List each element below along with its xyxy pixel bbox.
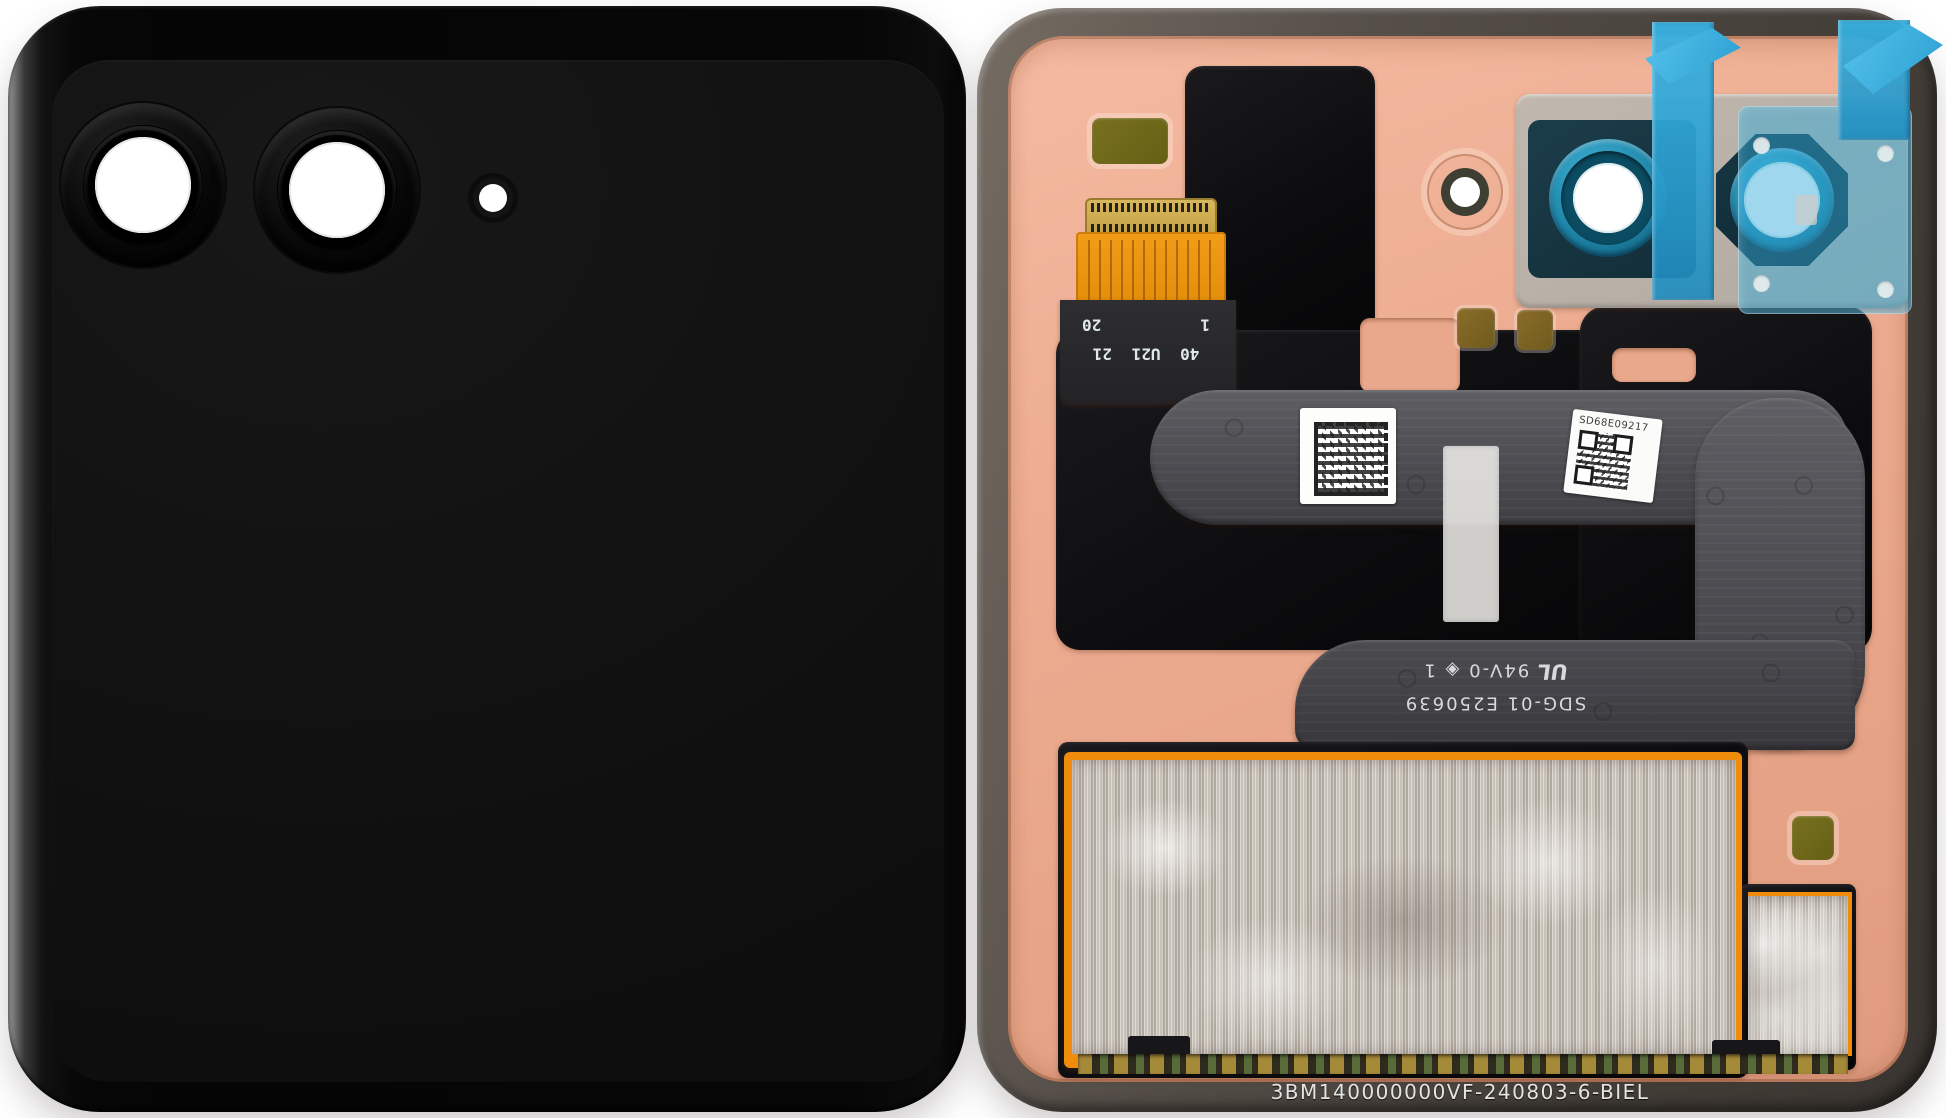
camera-lens-ring-2	[255, 108, 419, 272]
camera-lens-cutout-2	[289, 142, 385, 238]
diamond-symbol-icon: ◈	[1444, 660, 1460, 681]
flex-pin-marking: 40 U21 21 1 20	[1068, 310, 1224, 368]
qr-code-icon	[1573, 430, 1633, 490]
flex-pin-ends: 1 20	[1068, 310, 1224, 339]
olive-sticker-top	[1092, 118, 1168, 164]
film-screw-hole	[1753, 275, 1770, 292]
cover-assembly-inner: 40 U21 21 1 20 SDG-01 E250639 UL94V-0 ◈ …	[977, 8, 1937, 1112]
flex-pin-row: 40 U21 21	[1068, 339, 1224, 368]
gold-pad-1	[1457, 308, 1495, 348]
qr-eye-icon	[1612, 434, 1633, 455]
copper-window-mid	[1360, 318, 1460, 392]
serial-label: SD68E09217	[1563, 409, 1663, 503]
datamatrix-label	[1300, 408, 1396, 504]
photo-canvas: 40 U21 21 1 20 SDG-01 E250639 UL94V-0 ◈ …	[0, 0, 1946, 1118]
connector-pins-top	[1091, 203, 1211, 212]
ribbon-part-number: SDG-01 E250639	[1355, 688, 1635, 717]
panel-weave-main	[1072, 760, 1736, 1054]
panel-contact-strip	[1078, 1054, 1848, 1074]
flex-cable-tail: 40 U21 21 1 20	[1060, 300, 1236, 404]
ribbon-rating-line: UL94V-0 ◈ 1	[1355, 654, 1635, 688]
revision-number: 1	[1422, 660, 1435, 681]
olive-sticker-bottom	[1792, 816, 1834, 860]
copper-window-cutout	[1612, 348, 1696, 382]
white-tape-strip	[1443, 446, 1499, 622]
flash-cutout	[479, 184, 507, 212]
pin-last-label: 20	[1082, 310, 1101, 339]
gold-pad-2	[1517, 310, 1553, 350]
cover-glass-front	[8, 6, 966, 1112]
film-screw-hole	[1877, 281, 1894, 298]
pin-first-label: 1	[1200, 310, 1210, 339]
flash-hole-inner	[1450, 177, 1480, 207]
panel-weave-ext	[1748, 892, 1852, 1056]
ribbon-band-lower: SDG-01 E250639 UL94V-0 ◈ 1	[1295, 640, 1855, 750]
qr-eye-icon	[1578, 430, 1599, 451]
bottom-part-marking: 3BM140000000VF-240803-6-BIEL	[1020, 1080, 1900, 1104]
camera-lens-hole-left	[1573, 163, 1643, 233]
ul-logo-mark: UL	[1535, 654, 1570, 688]
datamatrix-code-icon	[1314, 422, 1388, 496]
film-notch	[1795, 195, 1817, 225]
ribbon-marking-text: SDG-01 E250639 UL94V-0 ◈ 1	[1355, 654, 1635, 716]
qr-eye-icon	[1573, 465, 1594, 486]
camera-lens-cutout-1	[95, 137, 191, 233]
film-screw-hole	[1877, 145, 1894, 162]
film-screw-hole	[1753, 137, 1770, 154]
flammability-rating: 94V-0	[1467, 660, 1529, 681]
camera-lens-ring-1	[61, 103, 225, 267]
